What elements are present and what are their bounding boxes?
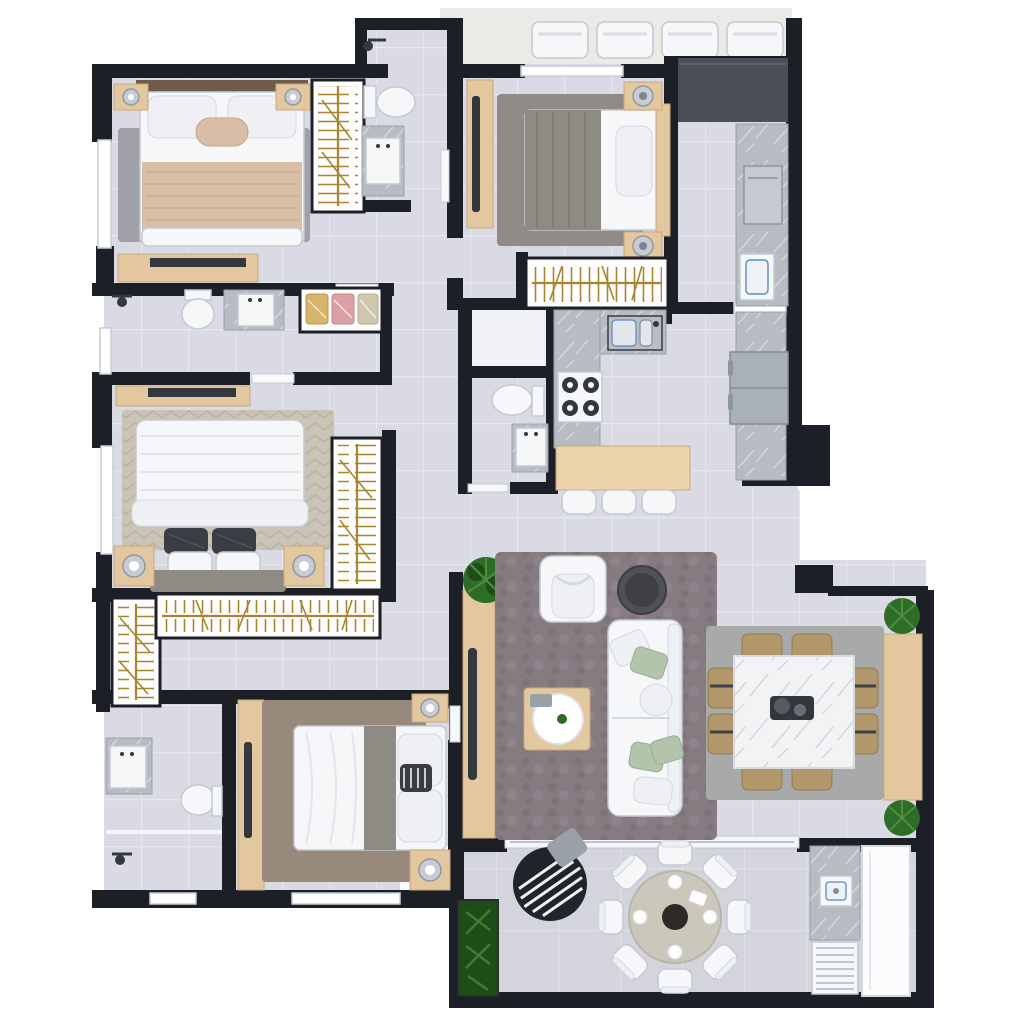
floor-plan-canvas [0, 0, 1024, 1024]
shower-icon [363, 41, 373, 51]
table-deco [530, 694, 552, 707]
sideboard [884, 634, 922, 800]
window [521, 66, 623, 76]
hanging-rail-vertical [112, 598, 160, 706]
plant-icon [884, 598, 920, 634]
door-leaf [468, 484, 508, 492]
pillow [633, 776, 674, 806]
toilet-icon [492, 385, 532, 415]
floor-plan-svg [0, 0, 1024, 1024]
mini-plant-icon [557, 714, 567, 724]
toilet-icon [182, 299, 214, 329]
chair-icon [708, 668, 736, 708]
bed-end-blanket [150, 570, 286, 592]
round-pillow [640, 684, 672, 716]
tv-icon [472, 96, 480, 212]
coffee-table [524, 688, 590, 750]
balcony-chair-icon [599, 900, 623, 934]
door-leaf [441, 150, 449, 202]
linen-shelf [300, 288, 382, 332]
door-leaf [252, 374, 294, 383]
balcony-chair-icon [727, 900, 751, 934]
sink-icon [110, 746, 146, 788]
bed-runner [364, 726, 396, 850]
dresser-top-item [148, 388, 236, 397]
dresser-top-item [150, 258, 246, 267]
island-bench [556, 446, 690, 490]
folded-sheet [132, 500, 308, 526]
closet-hanging-rail [526, 258, 668, 308]
hanging-rail-horizontal [156, 594, 380, 638]
door-leaf [450, 706, 460, 742]
toilet-tank [212, 786, 222, 816]
toilet-icon [181, 785, 215, 815]
window [100, 328, 111, 374]
toilet-icon [377, 87, 415, 117]
sink-icon [238, 294, 274, 326]
toilet-tank [364, 86, 376, 118]
sheet [142, 228, 302, 246]
washing-machine-icon [744, 166, 782, 224]
window [98, 140, 111, 248]
shower-icon [115, 855, 125, 865]
chair-icon [708, 714, 736, 754]
toilet-tank [532, 386, 544, 416]
stool-icon [562, 490, 596, 514]
balcony-chair-icon [658, 969, 692, 993]
dark-counter [678, 58, 788, 122]
glass-partition [106, 830, 222, 834]
window [101, 446, 113, 554]
closet-hanging-rail [332, 438, 382, 590]
sink-icon [516, 428, 546, 466]
shower-icon [117, 297, 127, 307]
lounger-icon [662, 22, 718, 58]
window [150, 893, 196, 904]
headboard [656, 104, 670, 236]
balcony-table-set [599, 841, 751, 993]
plant-icon [884, 800, 920, 836]
table-centerpiece [770, 696, 814, 720]
stool-icon [602, 490, 636, 514]
storage-closet [472, 310, 546, 366]
window [292, 893, 400, 904]
tv-sideboard [463, 590, 495, 838]
bbq-area [810, 846, 860, 994]
sink-icon [366, 138, 400, 184]
lounger-icon [597, 22, 653, 58]
planter [458, 900, 498, 996]
pillow [398, 790, 442, 842]
stool-icon [642, 490, 676, 514]
table-center-bowl [662, 904, 688, 930]
balcony-chair-icon [658, 841, 692, 865]
sofa [608, 620, 685, 816]
tv-icon [468, 648, 477, 780]
armchair [540, 556, 606, 622]
lounger-icon [727, 22, 783, 58]
lounger-icon [532, 22, 588, 58]
bedroom-bottom [238, 694, 450, 890]
upper-terrace [440, 8, 792, 64]
tv-icon [244, 742, 252, 838]
closet-hanging-rail [312, 80, 364, 212]
living-room [463, 552, 717, 840]
bolster-pillow [196, 118, 248, 146]
faucet-icon [653, 321, 659, 327]
pillow [616, 126, 652, 196]
